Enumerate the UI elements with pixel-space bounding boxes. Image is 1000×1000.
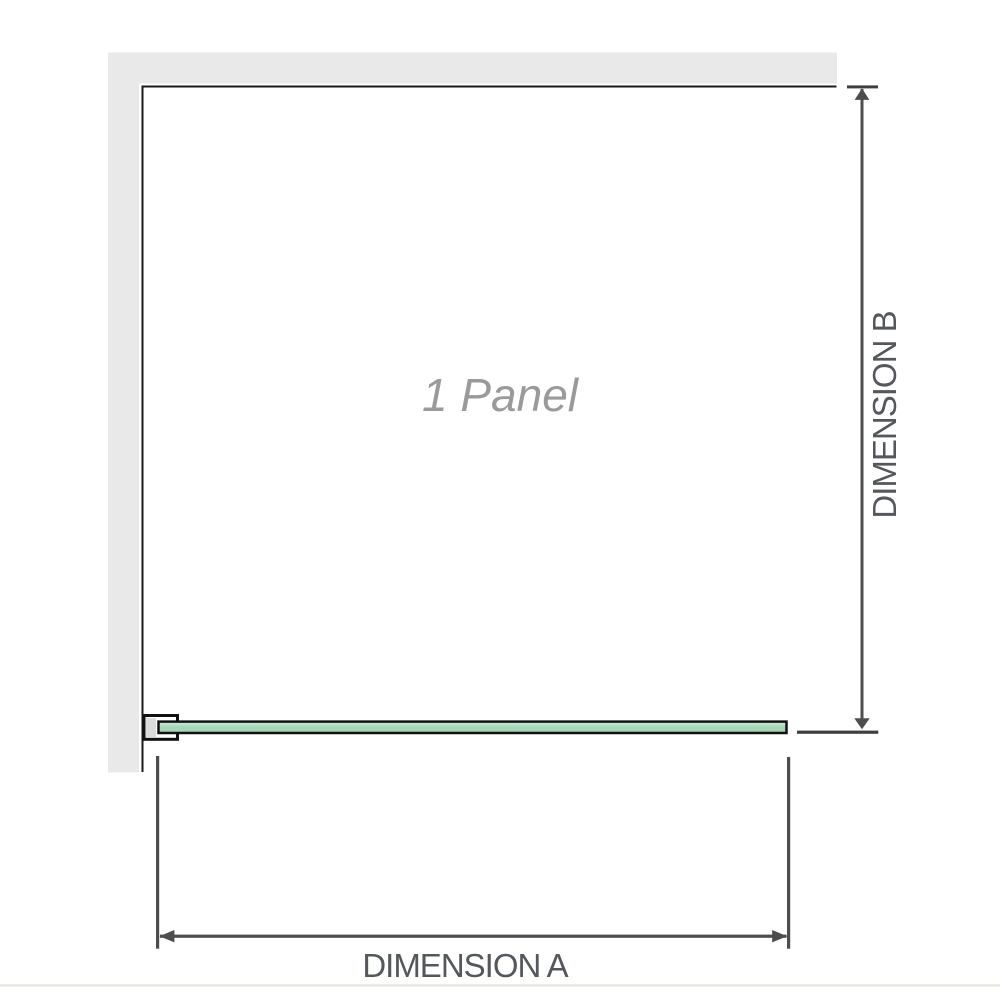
svg-text:DIMENSION A: DIMENSION A [362,947,568,984]
svg-text:1 Panel: 1 Panel [422,369,580,421]
svg-text:DIMENSION B: DIMENSION B [866,311,903,518]
